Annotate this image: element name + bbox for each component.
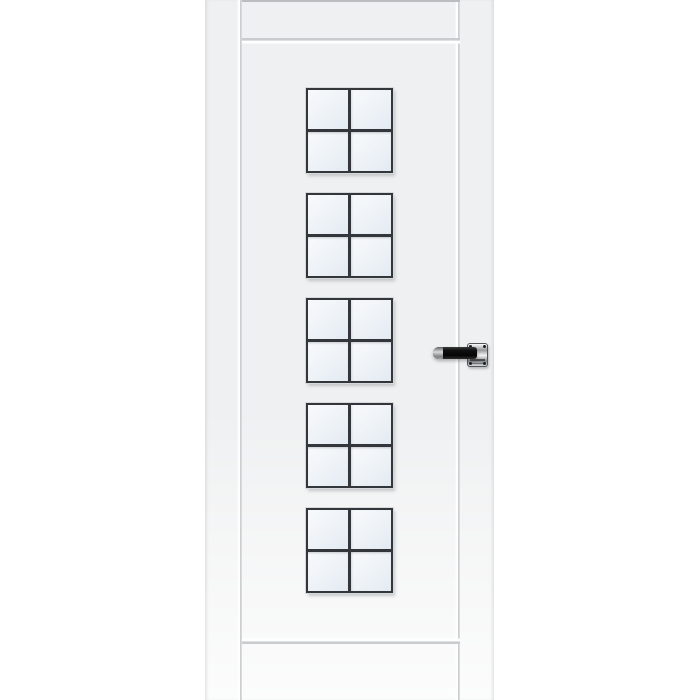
- rosette-detail-line: [470, 363, 485, 364]
- glass-pane: [308, 90, 348, 129]
- glass-pane: [351, 237, 391, 276]
- rosette-detail-line: [470, 359, 485, 361]
- glass-pane: [308, 342, 348, 381]
- door-window-2: [306, 193, 393, 278]
- glass-pane: [351, 132, 391, 171]
- top-edge-groove: [242, 0, 460, 2]
- door-window-3: [306, 298, 393, 383]
- stile-groove-left: [237, 0, 242, 700]
- glass-pane: [351, 90, 391, 129]
- glass-pane: [351, 300, 391, 339]
- door-window-4: [306, 403, 393, 488]
- glass-pane: [351, 552, 391, 591]
- top-rail-groove: [242, 38, 460, 44]
- glass-pane: [308, 132, 348, 171]
- glass-pane: [308, 510, 348, 549]
- glass-pane: [351, 510, 391, 549]
- glass-pane: [308, 405, 348, 444]
- glass-pane: [351, 342, 391, 381]
- glass-pane: [308, 300, 348, 339]
- handle-lever-tip: [433, 347, 443, 359]
- glass-pane: [351, 405, 391, 444]
- glass-pane: [308, 552, 348, 591]
- glass-pane: [308, 237, 348, 276]
- bottom-rail-groove: [242, 638, 460, 644]
- glass-pane: [308, 195, 348, 234]
- product-image: [0, 0, 700, 700]
- door-window-1: [306, 88, 393, 173]
- handle-lever: [433, 347, 477, 359]
- door-window-5: [306, 508, 393, 593]
- door: [205, 0, 494, 700]
- rosette-screw: [483, 345, 486, 348]
- glass-pane: [351, 195, 391, 234]
- glass-pane: [351, 447, 391, 486]
- glass-pane: [308, 447, 348, 486]
- glazing-column: [306, 88, 393, 613]
